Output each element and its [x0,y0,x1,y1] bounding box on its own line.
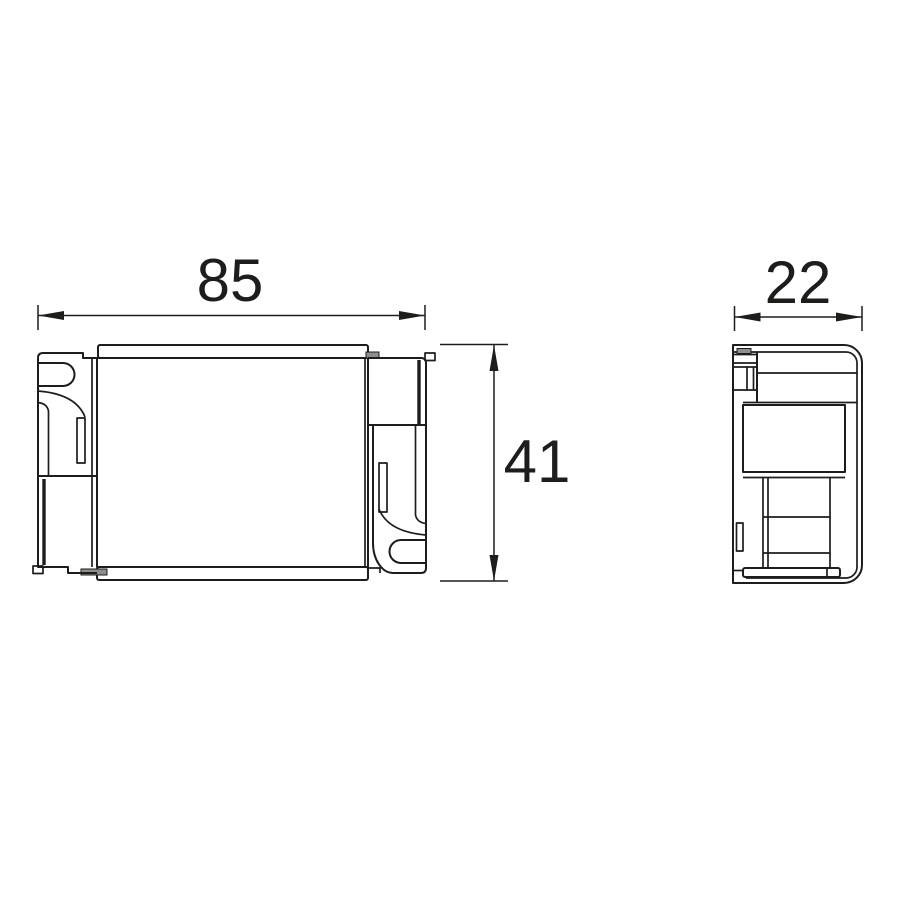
depth-arrow-right [836,313,862,322]
top-lid-strip [98,345,368,358]
side-outline [733,345,862,583]
vent-slot-left [77,418,85,463]
technical-drawing: 85 41 22 [0,0,900,900]
keyhole-slot-bottom-right [390,540,427,563]
side-terminal-dividers [747,367,754,390]
side-lower-tower-dividers [763,517,830,553]
dimension-depth: 22 [735,249,863,331]
bracket-right-step [368,568,380,573]
dimension-height: 41 [440,345,570,582]
side-lower-tower-walls [763,478,830,569]
side-middle-block [743,405,845,472]
dimension-drawing-canvas: 85 41 22 [0,0,900,900]
side-top-tab [737,349,751,354]
body-face [97,358,368,567]
keyhole-slot-top-left [38,363,75,386]
height-dimension-label: 41 [504,428,571,495]
side-bottom-bar [743,568,840,577]
width-arrow-right [399,311,425,320]
depth-dimension-label: 22 [765,249,832,316]
width-arrow-left [38,311,64,320]
mounting-bracket-left [33,353,97,574]
height-extension-lines [440,345,508,582]
bottom-lid-strip [97,567,368,580]
width-dimension-label: 85 [197,247,264,314]
height-arrow-top [490,345,499,371]
dimension-width: 85 [38,247,425,330]
side-edge-slot [737,523,744,551]
height-arrow-bottom [490,555,499,581]
bracket-left-curve-inner [38,403,49,477]
bracket-right-curve-inner [416,425,427,524]
side-inner-wall [733,352,857,578]
front-view [33,345,435,580]
side-view [733,345,862,583]
vent-slot-right [379,463,387,512]
mounting-bracket-right [365,353,435,573]
bracket-right-foot [425,353,435,361]
housing-body [81,345,379,580]
depth-arrow-left [735,313,761,322]
